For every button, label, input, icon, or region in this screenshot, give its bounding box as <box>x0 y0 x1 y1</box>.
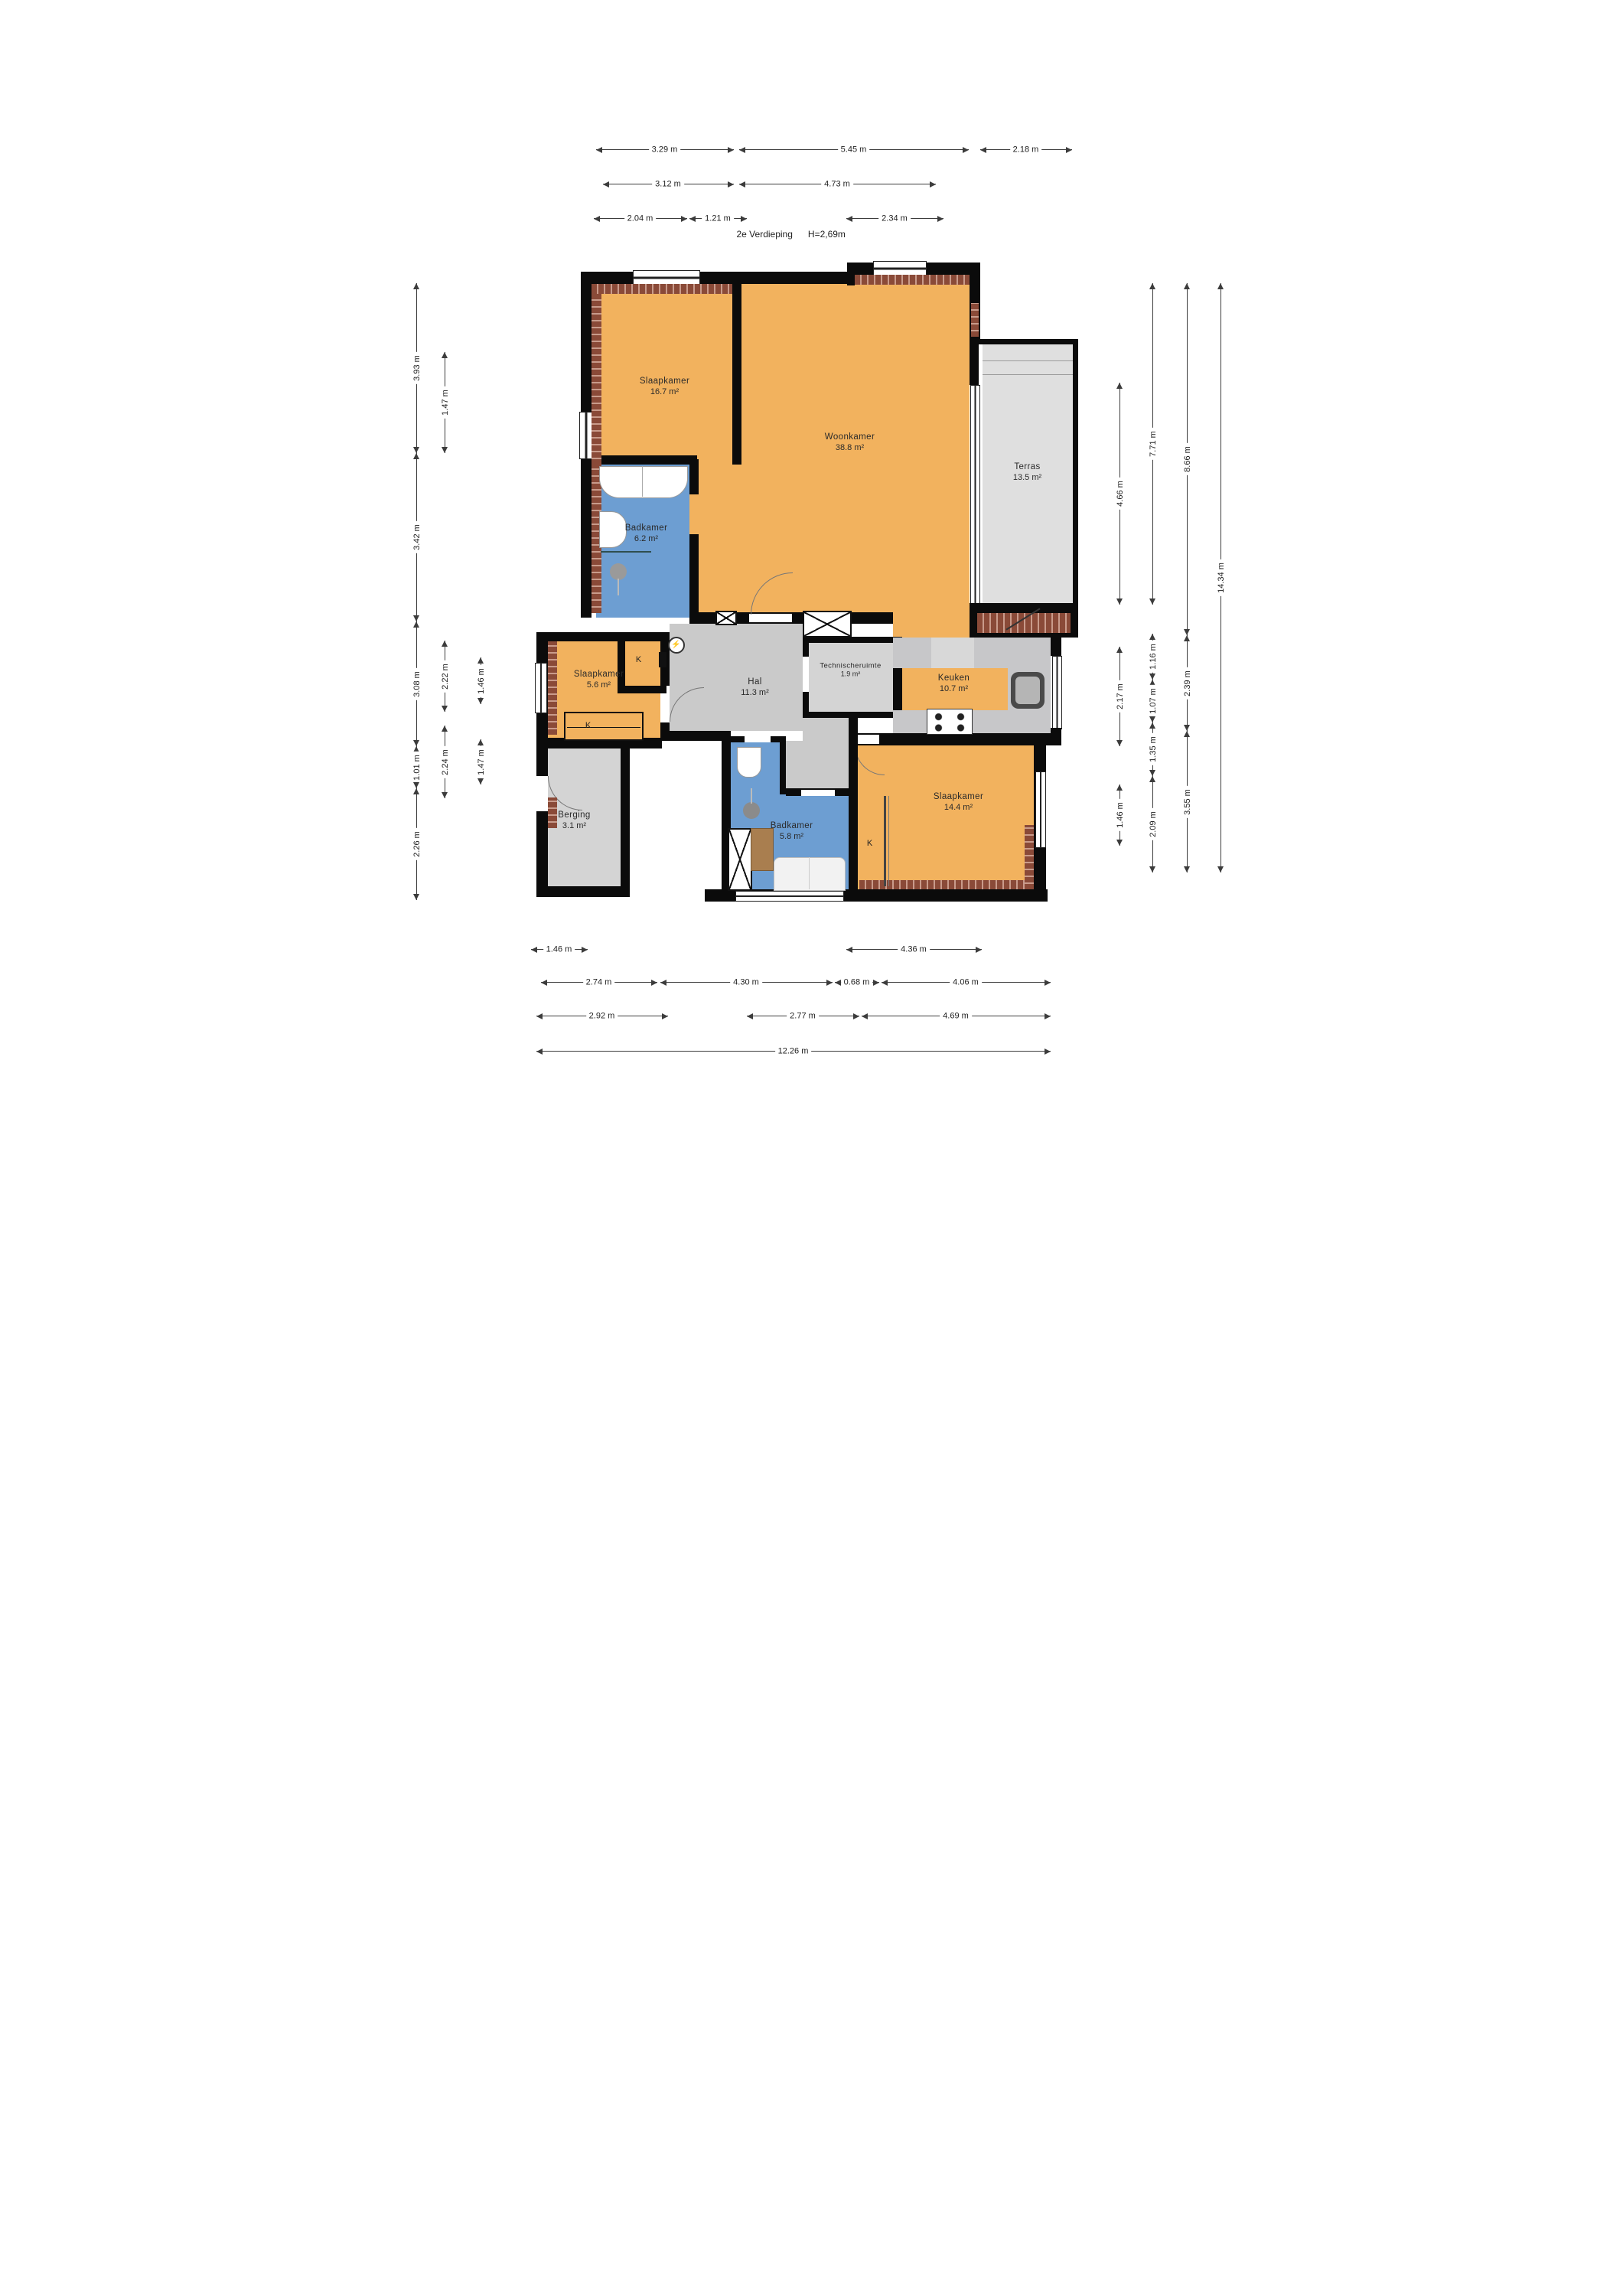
room-name: Slaapkamer <box>934 792 983 801</box>
kitchen-counter-block <box>931 638 974 668</box>
room-area: 11.3 m² <box>741 688 768 697</box>
wall-tech-bottom <box>803 712 902 718</box>
wall-berging-right <box>621 748 630 892</box>
label-berging: Berging 3.1 m² <box>558 810 590 830</box>
dimension: 1.21 m <box>689 218 747 219</box>
wall-terras-top <box>977 339 1078 344</box>
wall-wc-right <box>780 736 786 794</box>
room-area: 13.5 m² <box>1013 473 1041 482</box>
brick-berging-left <box>548 797 557 828</box>
dimension: 4.73 m <box>739 184 936 184</box>
label-slaapkamer-14: Slaapkamer 14.4 m² <box>934 792 983 812</box>
shaft-xbox-badkamer5 <box>728 828 752 891</box>
brick-slaapkamer16-left <box>592 294 601 465</box>
door-opening-wc <box>745 736 771 742</box>
dimension-label: 3.29 m <box>649 145 681 155</box>
room-name: Badkamer <box>771 821 813 830</box>
wall-corridor-right <box>849 718 858 788</box>
door-opening-berging <box>536 776 548 811</box>
window-slaapkamer14 <box>1035 771 1046 848</box>
dimension: 2.92 m <box>536 1016 668 1016</box>
dimension-label: 1.01 m <box>412 752 422 784</box>
dimension: 3.93 m <box>416 283 417 453</box>
dimension: 1.01 m <box>416 746 417 788</box>
dimension: 2.77 m <box>747 1016 859 1016</box>
dimension-label: 3.93 m <box>412 352 422 384</box>
dimension: 2.39 m <box>1187 635 1188 731</box>
double-sink-counter <box>599 466 688 498</box>
electric-meter-icon: ⚡ <box>668 637 685 654</box>
dimension: 1.47 m <box>481 739 481 784</box>
dimension: 4.69 m <box>862 1016 1051 1016</box>
dimension-label: 2.24 m <box>441 746 450 778</box>
room-woonkamer-keuken-open <box>893 612 970 638</box>
brick-slaapkamer5-left <box>548 641 557 735</box>
ceiling-height: H=2,69m <box>808 229 846 240</box>
room-name: Slaapkamer <box>574 670 624 679</box>
shower-head-icon <box>610 563 627 580</box>
dimension-label: 0.68 m <box>841 978 873 987</box>
gas-hob-icon <box>927 709 973 735</box>
room-name: Technischeruimte <box>820 662 881 670</box>
dimension: 2.22 m <box>445 641 445 712</box>
room-woonkamer-extension <box>699 465 741 612</box>
label-badkamer-5: Badkamer 5.8 m² <box>771 821 813 841</box>
dimension-label: 4.66 m <box>1116 478 1125 510</box>
dimension: 3.42 m <box>416 453 417 621</box>
window-badkamer5 <box>735 891 844 902</box>
label-closet-k3: K <box>867 839 872 848</box>
brick-slaapkamer14-right <box>1025 825 1034 889</box>
dimension: 7.71 m <box>1152 283 1153 605</box>
dimension: 12.26 m <box>536 1051 1051 1052</box>
brick-woonkamer-top <box>855 275 970 285</box>
wall-slaapkamer5-top <box>536 632 666 641</box>
closet-k1-interior <box>625 640 660 686</box>
sink-divider <box>642 466 643 497</box>
label-keuken: Keuken 10.7 m² <box>938 673 970 693</box>
wall-badkamer5-slaapkamer14 <box>849 794 858 889</box>
dimension: 2.09 m <box>1152 776 1153 872</box>
dimension-label: 4.73 m <box>821 180 853 189</box>
terras-line <box>983 374 1073 375</box>
room-name: Terras <box>1013 462 1041 471</box>
dimension: 1.16 m <box>1152 634 1153 680</box>
room-slaapkamer-16 <box>590 284 732 465</box>
dimension-label: 2.18 m <box>1010 145 1042 155</box>
fuse-box-icon <box>659 652 666 667</box>
dimension-label: 1.35 m <box>1149 733 1158 765</box>
room-area: 3.1 m² <box>558 821 590 830</box>
shower-stem <box>618 579 619 595</box>
door-opening-badkamer5 <box>801 790 835 796</box>
dimension-label: 2.17 m <box>1116 680 1125 713</box>
toilet-icon <box>737 747 761 778</box>
hal-corridor-b <box>786 741 849 794</box>
dimension: 2.17 m <box>1119 647 1120 746</box>
window-woonkamer-terras <box>970 385 980 605</box>
dimension: 3.12 m <box>603 184 734 184</box>
dimension-label: 1.47 m <box>477 746 486 778</box>
dimension: 2.34 m <box>846 218 943 219</box>
window-keuken <box>1052 656 1062 729</box>
dimension: 4.30 m <box>660 982 833 983</box>
dimension-label: 1.47 m <box>441 386 450 419</box>
wall-tech-top <box>803 637 902 643</box>
dimension: 1.46 m <box>481 657 481 704</box>
dimension-label: 3.12 m <box>652 180 684 189</box>
closet-k2 <box>564 712 644 741</box>
wall-berging-left <box>536 748 548 891</box>
plan-title: 2e Verdieping H=2,69m <box>737 229 846 240</box>
dimension: 4.66 m <box>1119 383 1120 605</box>
shaft-xbox-hal <box>715 611 737 625</box>
dimension-label: 1.07 m <box>1149 685 1158 717</box>
dimension: 3.08 m <box>416 621 417 746</box>
dimension-label: 2.34 m <box>878 214 911 223</box>
dimension: 1.46 m <box>1119 784 1120 846</box>
dimension: 2.18 m <box>980 149 1072 150</box>
dimension-label: 1.21 m <box>702 214 734 223</box>
wall-slaapkamer-woonkamer <box>732 276 741 465</box>
label-closet-k1: K <box>636 655 641 664</box>
terras-line <box>983 360 1073 361</box>
wall-terras-right <box>1073 339 1078 608</box>
dimension-label: 3.08 m <box>412 668 422 700</box>
dimension-label: 2.22 m <box>441 660 450 693</box>
wall-hal-bottom-left <box>660 731 731 741</box>
basin-divider <box>809 857 810 889</box>
closet-k3-door <box>884 796 886 886</box>
room-area: 38.8 m² <box>825 443 875 452</box>
dimension-label: 1.16 m <box>1149 641 1158 673</box>
label-hal: Hal 11.3 m² <box>741 677 768 697</box>
dimension: 2.04 m <box>594 218 687 219</box>
room-name: Keuken <box>938 673 970 683</box>
shower-head-icon <box>743 802 760 819</box>
window-woonkamer-top <box>873 261 927 276</box>
dimension: 4.36 m <box>846 949 982 950</box>
dimension-label: 4.30 m <box>730 978 762 987</box>
room-name: Woonkamer <box>825 432 875 442</box>
label-woonkamer: Woonkamer 38.8 m² <box>825 432 875 452</box>
dimension-label: 7.71 m <box>1149 428 1158 460</box>
wall-terras-bottom <box>977 603 1078 608</box>
room-area: 5.6 m² <box>574 680 624 690</box>
dimension: 3.55 m <box>1187 731 1188 872</box>
dimension-label: 2.39 m <box>1183 667 1192 700</box>
wall-tech-top-link <box>850 612 893 624</box>
dimension-label: 8.66 m <box>1183 443 1192 475</box>
dimension-label: 3.55 m <box>1183 786 1192 818</box>
room-area: 6.2 m² <box>625 534 668 543</box>
dimension: 5.45 m <box>739 149 969 150</box>
dimension-label: 1.46 m <box>543 945 575 954</box>
dimension-label: 14.34 m <box>1217 559 1226 596</box>
hal-corridor-a <box>803 718 849 742</box>
label-closet-k2: K <box>585 721 591 730</box>
dimension: 2.74 m <box>541 982 657 983</box>
label-slaapkamer-16: Slaapkamer 16.7 m² <box>640 377 689 396</box>
label-terras: Terras 13.5 m² <box>1013 462 1041 482</box>
door-opening-hal-woonkamer <box>749 614 792 622</box>
wall-terras-left-stub <box>970 339 979 385</box>
room-area: 1.9 m² <box>820 670 881 678</box>
toilet-icon <box>599 511 627 548</box>
dimension: 2.24 m <box>445 726 445 798</box>
dimension-label: 5.45 m <box>838 145 870 155</box>
wall-left-mid <box>581 465 592 618</box>
dimension-label: 1.46 m <box>477 665 486 697</box>
dimension-label: 2.77 m <box>787 1012 819 1021</box>
wall-keuken-right-a <box>1051 638 1061 656</box>
dimension: 3.29 m <box>596 149 734 150</box>
shaft-xbox-tech <box>803 611 852 638</box>
door-opening-badkamer6 <box>689 494 699 534</box>
wall-k1-bottom <box>618 686 666 693</box>
room-area: 16.7 m² <box>640 387 689 396</box>
floor-name: 2e Verdieping <box>737 229 793 240</box>
dimension: 2.26 m <box>416 788 417 900</box>
dimension-label: 1.46 m <box>1116 799 1125 831</box>
wall-badkamer6-right <box>689 459 699 618</box>
kitchen-sink-basin <box>1015 677 1040 704</box>
label-technische-ruimte: Technischeruimte 1.9 m² <box>820 662 881 678</box>
dimension: 4.06 m <box>882 982 1051 983</box>
wall-berging-bottom <box>536 886 630 897</box>
brick-pier <box>971 303 979 337</box>
room-name: Badkamer <box>625 523 668 533</box>
dimension: 1.46 m <box>531 949 588 950</box>
closet-k3-door-line <box>888 796 889 886</box>
dimension: 14.34 m <box>1221 283 1221 872</box>
dimension-label: 12.26 m <box>775 1047 812 1056</box>
room-name: Hal <box>741 677 768 687</box>
dimension-label: 3.42 m <box>412 521 422 553</box>
shower-stem <box>751 788 752 804</box>
window-slaapkamer5 <box>535 663 547 713</box>
dimension-label: 4.06 m <box>950 978 982 987</box>
brick-keuken-top <box>977 613 1071 633</box>
double-washbasin <box>774 857 846 891</box>
shower-glass <box>601 551 651 553</box>
dimension-label: 2.09 m <box>1149 808 1158 840</box>
label-slaapkamer-5: Slaapkamer 5.6 m² <box>574 670 624 690</box>
dimension-label: 4.36 m <box>898 945 930 954</box>
dimension: 1.07 m <box>1152 680 1153 722</box>
dimension: 8.66 m <box>1187 283 1188 635</box>
room-area: 14.4 m² <box>934 803 983 812</box>
dimension-label: 2.04 m <box>624 214 657 223</box>
dimension-label: 2.26 m <box>412 828 422 860</box>
window-slaapkamer16-top <box>633 270 700 285</box>
room-name: Berging <box>558 810 590 820</box>
dimension: 1.47 m <box>445 352 445 453</box>
dimension-label: 2.74 m <box>583 978 615 987</box>
dimension-label: 4.69 m <box>940 1012 972 1021</box>
room-name: Slaapkamer <box>640 377 689 386</box>
dimension: 1.35 m <box>1152 722 1153 776</box>
floorplan-canvas: ⚡ Slaapkamer 16.7 m² Woonkamer 38.8 m² T… <box>391 0 1233 1191</box>
wall-step <box>847 263 855 285</box>
dimension: 0.68 m <box>835 982 879 983</box>
door-opening-tech <box>803 657 809 692</box>
room-area: 5.8 m² <box>771 832 813 841</box>
brick-slaapkamer16-top <box>592 284 732 294</box>
dimension-label: 2.92 m <box>586 1012 618 1021</box>
wall-top-left <box>581 272 853 284</box>
room-area: 10.7 m² <box>938 684 970 693</box>
label-badkamer-6: Badkamer 6.2 m² <box>625 523 668 543</box>
